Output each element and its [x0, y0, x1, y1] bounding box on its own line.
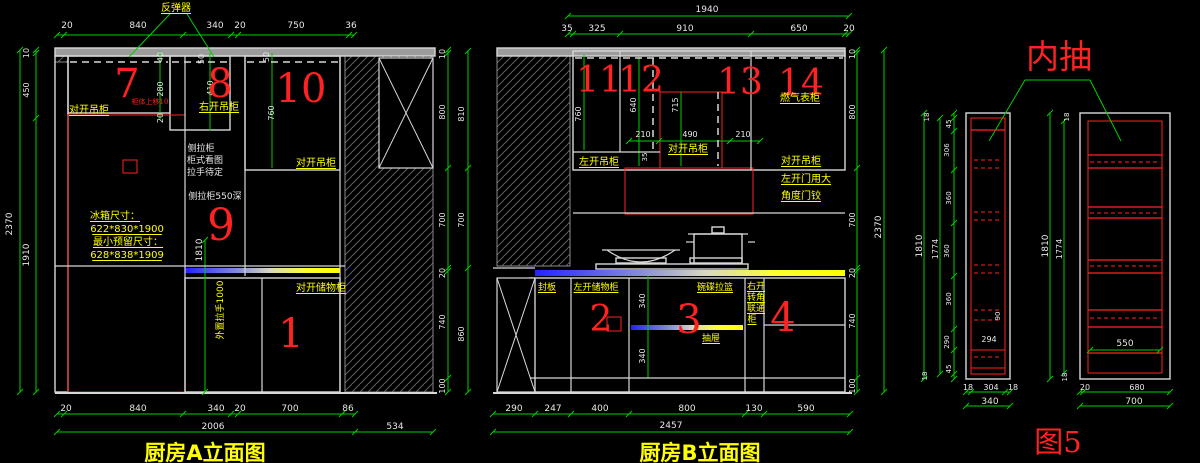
dim-text: 340: [638, 293, 647, 308]
text-glyphs: 640: [629, 97, 638, 112]
text-glyphs: 622*830*1900: [90, 224, 164, 235]
cabinet-outline: [596, 264, 748, 269]
dim-text: 1810: [195, 238, 205, 261]
fridge-note: 622*830*1900: [90, 224, 164, 235]
text-glyphs: 40: [156, 52, 165, 62]
text-glyphs: 45: [945, 120, 953, 129]
dim-text: 340: [638, 348, 647, 363]
cabinet-outline: [55, 56, 68, 392]
text-glyphs: 9: [207, 200, 235, 251]
dim-text: 35: [641, 153, 649, 162]
text-glyphs: 360: [943, 244, 951, 257]
dim-text: 1810: [1041, 234, 1051, 257]
dim-text: 90: [994, 312, 1002, 321]
dim-text: 20: [234, 404, 246, 414]
item-number-4: 4: [770, 295, 795, 341]
text-glyphs: 90: [994, 312, 1002, 321]
text-glyphs: 封板: [538, 281, 556, 293]
text-glyphs: 700: [438, 212, 447, 227]
annotation-label: 左开储物柜: [573, 281, 618, 293]
text-glyphs: 340: [207, 404, 224, 414]
kitchen-a-title: 厨房A立面图: [139, 437, 270, 463]
dim-text: 18: [1063, 113, 1071, 122]
red-outline: [1088, 121, 1162, 373]
text-glyphs: 810: [457, 106, 466, 121]
dim-text: 50: [262, 52, 271, 62]
text-glyphs: 18: [1063, 113, 1071, 122]
text-glyphs: 700: [457, 212, 466, 227]
dim-text: 86: [342, 404, 354, 414]
text-glyphs: 燃气表柜: [780, 91, 820, 104]
text-glyphs: 柜体上移10: [132, 97, 169, 106]
text-glyphs: 534: [386, 422, 403, 432]
text-glyphs: 10: [438, 49, 447, 59]
text-glyphs: 628*838*1909: [90, 250, 164, 261]
item-number-9: 9: [207, 200, 235, 251]
dimension-line: [1090, 80, 1121, 141]
text-glyphs: 680: [1129, 383, 1144, 392]
text-glyphs: 590: [797, 404, 814, 414]
dim-text: 640: [629, 97, 638, 112]
dim-text: 45: [945, 365, 953, 374]
dim-text: 400: [591, 404, 608, 414]
text-glyphs: 对开储物柜: [296, 281, 346, 294]
text-glyphs: 840: [129, 404, 146, 414]
text-glyphs: 8: [207, 61, 232, 107]
text-glyphs: 拉手待定: [187, 166, 223, 178]
dim-text: 2370: [874, 215, 884, 238]
dim-text: 760: [574, 106, 583, 121]
text-glyphs: 右开: [747, 280, 765, 292]
text-glyphs: 86: [342, 404, 354, 414]
text-glyphs: 18: [923, 113, 931, 122]
dim-text: 36: [345, 21, 357, 31]
annotation-label: 左开门用大: [781, 172, 831, 185]
annotation-label: 对开吊柜: [296, 156, 336, 169]
dim-text: 680: [1129, 383, 1144, 392]
cad-drawing-canvas: 反弹器2084034020750362370104501910402802050…: [0, 0, 1200, 463]
text-glyphs: 内抽: [1026, 37, 1092, 76]
cabinet-note: 侧拉柜: [187, 142, 214, 154]
text-glyphs: 210: [735, 130, 750, 139]
annotation-label: 左开吊柜: [579, 155, 619, 168]
text-glyphs: 700: [1125, 397, 1142, 407]
annotation-label: 对开储物柜: [296, 281, 346, 294]
text-glyphs: 侧拉柜: [187, 142, 214, 154]
dim-text: 280: [156, 81, 165, 96]
counter-gradient-bar: [185, 268, 340, 273]
text-glyphs: 760: [574, 106, 583, 121]
dim-text: 800: [848, 104, 857, 119]
dim-text: 130: [745, 404, 762, 414]
text-glyphs: 转角: [747, 291, 765, 303]
cabinet-outline: [690, 258, 742, 263]
text-glyphs: 100: [848, 378, 857, 393]
text-glyphs: 20: [234, 404, 246, 414]
dim-text: 18: [921, 372, 929, 381]
text-glyphs: 20: [234, 21, 246, 31]
dim-text: 35: [561, 24, 572, 34]
text-glyphs: 290: [943, 335, 951, 348]
text-glyphs: 抽屉: [702, 332, 720, 344]
dim-text: 100: [438, 378, 447, 393]
text-glyphs: 碗碟拉篮: [697, 281, 733, 293]
text-glyphs: 对开吊柜: [781, 154, 821, 167]
text-glyphs: 45: [945, 365, 953, 374]
text-glyphs: 3: [676, 297, 701, 343]
dim-text: 550: [1116, 339, 1133, 349]
dim-text: 360: [943, 244, 951, 257]
text-glyphs: 联通: [747, 303, 765, 314]
text-glyphs: 对开吊柜: [668, 142, 708, 155]
dim-text: 306: [943, 143, 951, 157]
dim-text: 800: [678, 404, 695, 414]
dim-text: 1910: [22, 243, 32, 266]
dim-text: 20: [156, 113, 165, 123]
dim-text: 10: [438, 49, 447, 59]
text-glyphs: 柜: [747, 313, 756, 325]
item-number-12: 12: [618, 60, 664, 101]
dim-text: 20: [61, 21, 73, 31]
text-glyphs: 860: [457, 326, 466, 341]
dim-text: 860: [457, 326, 466, 341]
dim-text: 18: [963, 383, 973, 392]
inner-drawer-callout: 内抽: [1026, 37, 1092, 76]
text-glyphs: 304: [983, 383, 998, 392]
text-glyphs: 650: [790, 24, 807, 34]
text-glyphs: 210: [635, 130, 650, 139]
text-glyphs: 10: [848, 49, 857, 59]
text-glyphs: 290: [505, 404, 522, 414]
annotation-label: 对开吊柜: [69, 103, 109, 116]
text-glyphs: 20: [60, 404, 72, 414]
dim-text: 2006: [202, 422, 225, 432]
text-glyphs: 左开储物柜: [573, 281, 618, 293]
fridge-note: 628*838*1909: [90, 250, 164, 261]
cabinet-note: 柜式看图: [187, 154, 223, 166]
dim-text: 1774: [1055, 239, 1064, 259]
hinge-note: 柜体上移10: [132, 97, 169, 106]
text-glyphs: 50: [197, 54, 206, 64]
red-outline: [971, 350, 1005, 368]
dim-text: 840: [129, 21, 146, 31]
text-glyphs: 800: [848, 104, 857, 119]
text-glyphs: 35: [641, 153, 649, 162]
item-number-11: 11: [576, 60, 622, 101]
text-glyphs: 840: [129, 21, 146, 31]
dim-text: 740: [848, 313, 857, 328]
annotation-label: 联通: [747, 303, 765, 314]
text-glyphs: 910: [676, 24, 693, 34]
dim-text: 1940: [696, 5, 719, 15]
cabinet-outline: [497, 48, 845, 56]
text-glyphs: 750: [287, 21, 304, 31]
item-number-13: 13: [717, 62, 763, 103]
annotation-label: 转角: [747, 291, 765, 303]
text-glyphs: 反弹器: [161, 1, 191, 14]
cabinet-outline: [55, 48, 435, 56]
dim-text: 18: [1008, 383, 1018, 392]
dim-text: 210: [735, 130, 750, 139]
cad-drawing-stage: 反弹器2084034020750362370104501910402802050…: [0, 0, 1200, 463]
item-number-1: 1: [278, 311, 303, 357]
text-glyphs: 700: [281, 404, 298, 414]
text-glyphs: 280: [156, 81, 165, 96]
text-glyphs: 角度门铰: [781, 189, 821, 202]
text-glyphs: 1810: [195, 238, 205, 261]
text-glyphs: 800: [678, 404, 695, 414]
text-glyphs: 对开吊柜: [296, 156, 336, 169]
dim-text: 910: [676, 24, 693, 34]
text-glyphs: 对开吊柜: [69, 103, 109, 116]
text-glyphs: 360: [945, 292, 953, 305]
text-glyphs: 700: [848, 212, 857, 227]
text-glyphs: 最小预留尺寸：: [93, 235, 163, 248]
text-glyphs: 18: [1061, 373, 1069, 382]
text-glyphs: 13: [717, 62, 763, 103]
dim-text: 700: [848, 212, 857, 227]
dim-text: 10: [848, 49, 857, 59]
text-glyphs: 侧拉柜550深: [188, 190, 241, 202]
text-glyphs: 1774: [931, 239, 940, 259]
dim-text: 100: [848, 378, 857, 393]
text-glyphs: 340: [206, 21, 223, 31]
dim-text: 650: [790, 24, 807, 34]
text-glyphs: 130: [745, 404, 762, 414]
annotation-label: 外置拉手1000: [214, 280, 226, 339]
text-glyphs: 2370: [5, 212, 15, 235]
text-glyphs: 294: [981, 335, 996, 344]
cooktop-wok: [607, 250, 675, 262]
dim-text: 18: [923, 113, 931, 122]
item-number-8: 8: [207, 61, 232, 107]
text-glyphs: 50: [262, 52, 271, 62]
dim-text: 810: [457, 106, 466, 121]
dim-text: 304: [983, 383, 998, 392]
text-glyphs: 左开门用大: [781, 172, 831, 185]
dim-text: 1774: [931, 239, 940, 259]
dim-text: 247: [544, 404, 561, 414]
text-glyphs: 20: [438, 268, 447, 278]
dim-text: 700: [457, 212, 466, 227]
dim-text: 740: [438, 314, 447, 329]
text-glyphs: 1810: [1041, 234, 1051, 257]
dim-text: 10: [22, 48, 31, 58]
text-glyphs: 18: [963, 383, 973, 392]
text-glyphs: 1940: [696, 5, 719, 15]
dim-text: 360: [945, 292, 953, 305]
text-glyphs: 450: [22, 82, 31, 97]
text-glyphs: 800: [438, 104, 447, 119]
item-number-2: 2: [590, 299, 613, 340]
item-number-10: 10: [276, 66, 327, 112]
annotation-label: 燃气表柜: [780, 91, 820, 104]
text-glyphs: 340: [638, 293, 647, 308]
text-glyphs: 306: [943, 143, 951, 157]
dim-text: 20: [848, 268, 857, 278]
annotation-label: 抽屉: [702, 332, 720, 344]
text-glyphs: 20: [1080, 383, 1090, 392]
text-glyphs: 1910: [22, 243, 32, 266]
text-glyphs: 左开吊柜: [579, 155, 619, 168]
red-outline: [625, 168, 753, 214]
dim-text: 20: [1080, 383, 1090, 392]
text-glyphs: 550: [1116, 339, 1133, 349]
dim-text: 50: [197, 54, 206, 64]
kitchen-b-title: 厨房B立面图: [634, 437, 765, 463]
text-glyphs: 100: [438, 378, 447, 393]
dim-text: 20: [60, 404, 72, 414]
text-glyphs: 右开吊柜: [199, 100, 239, 113]
annotation-label: 对开吊柜: [668, 142, 708, 155]
annotation-label: 对开吊柜: [781, 154, 821, 167]
text-glyphs: 11: [576, 60, 622, 101]
dim-text: 840: [129, 404, 146, 414]
dim-text: 325: [588, 24, 605, 34]
cabinet-note: 侧拉柜550深: [188, 190, 241, 202]
dim-text: 1810: [915, 234, 925, 257]
dim-text: 750: [287, 21, 304, 31]
annotation-label: 封板: [538, 281, 556, 293]
text-glyphs: 340: [638, 348, 647, 363]
dim-text: 20: [234, 21, 246, 31]
rebounder-callout: 反弹器: [161, 1, 191, 14]
text-glyphs: 35: [561, 24, 572, 34]
red-outline: [123, 160, 137, 173]
dim-text: 450: [22, 82, 31, 97]
annotation-label: 右开吊柜: [199, 100, 239, 113]
dim-text: 590: [797, 404, 814, 414]
text-glyphs: 2457: [660, 421, 683, 431]
text-glyphs: 740: [848, 313, 857, 328]
text-glyphs: 340: [981, 397, 998, 407]
cabinet-note: 拉手待定: [187, 166, 223, 178]
dim-text: 45: [945, 120, 953, 129]
text-glyphs: 20: [848, 268, 857, 278]
text-glyphs: 20: [61, 21, 73, 31]
text-glyphs: 10: [22, 48, 31, 58]
text-glyphs: 247: [544, 404, 561, 414]
text-glyphs: 外置拉手1000: [214, 280, 226, 339]
text-glyphs: 10: [276, 66, 327, 112]
text-glyphs: 400: [591, 404, 608, 414]
dim-text: 340: [981, 397, 998, 407]
dimension-line: [989, 80, 1025, 141]
dim-text: 360: [945, 191, 953, 204]
text-glyphs: 325: [588, 24, 605, 34]
dim-text: 700: [1125, 397, 1142, 407]
dim-text: 700: [281, 404, 298, 414]
text-glyphs: 490: [682, 130, 697, 139]
text-glyphs: 18: [1008, 383, 1018, 392]
dim-text: 40: [156, 52, 165, 62]
dim-text: 290: [943, 335, 951, 348]
dim-text: 800: [438, 104, 447, 119]
annotation-label: 柜: [747, 313, 756, 325]
dim-text: 534: [386, 422, 403, 432]
dim-text: 340: [207, 404, 224, 414]
wall-hatch: [497, 56, 570, 266]
annotation-label: 角度门铰: [781, 189, 821, 202]
text-glyphs: 36: [345, 21, 357, 31]
annotation-label: 右开: [747, 280, 765, 292]
cabinet-outline: [694, 234, 742, 266]
fridge-note: 冰箱尺寸：: [90, 209, 140, 222]
text-glyphs: 1: [278, 311, 303, 357]
dim-text: 340: [206, 21, 223, 31]
text-glyphs: 1810: [915, 234, 925, 257]
item-number-3: 3: [676, 297, 701, 343]
text-glyphs: 12: [618, 60, 664, 101]
text-glyphs: 18: [921, 372, 929, 381]
text-glyphs: 360: [945, 191, 953, 204]
text-glyphs: 2: [590, 299, 613, 340]
text-glyphs: 4: [770, 295, 795, 341]
dim-text: 294: [981, 335, 996, 344]
text-glyphs: 715: [671, 97, 680, 112]
text-glyphs: 2370: [874, 215, 884, 238]
text-glyphs: 20: [843, 24, 855, 34]
dim-text: 2457: [660, 421, 683, 431]
dim-text: 2370: [5, 212, 15, 235]
figure-5-label: 图5: [1034, 419, 1081, 461]
counter-gradient-bar: [535, 270, 845, 276]
cabinet-outline: [712, 227, 724, 233]
text-glyphs: 1774: [1055, 239, 1064, 259]
text-glyphs: 20: [156, 113, 165, 123]
text-glyphs: 740: [438, 314, 447, 329]
text-glyphs: 2006: [202, 422, 225, 432]
dim-text: 20: [438, 268, 447, 278]
fridge-note: 最小预留尺寸：: [93, 235, 163, 248]
dim-text: 715: [671, 97, 680, 112]
dim-text: 700: [438, 212, 447, 227]
text-glyphs: 冰箱尺寸：: [90, 209, 140, 222]
dim-text: 490: [682, 130, 697, 139]
dim-text: 20: [843, 24, 855, 34]
dim-text: 18: [1061, 373, 1069, 382]
dim-text: 210: [635, 130, 650, 139]
annotation-label: 碗碟拉篮: [697, 281, 733, 293]
text-glyphs: 柜式看图: [187, 154, 223, 166]
dim-text: 290: [505, 404, 522, 414]
